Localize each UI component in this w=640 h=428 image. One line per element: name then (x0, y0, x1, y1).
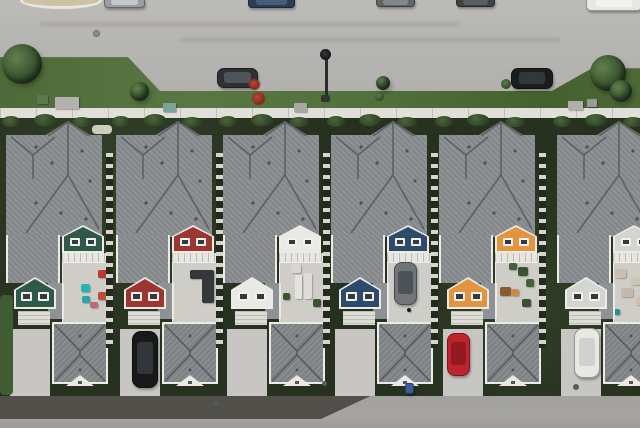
patio-furniture (500, 287, 511, 296)
vehicle-roof (383, 0, 408, 5)
front-shrub (553, 116, 571, 127)
patio-furniture (283, 293, 290, 300)
driveway (10, 329, 50, 396)
utility-box (568, 101, 583, 110)
garage-roof (52, 322, 108, 384)
patio-furniture (615, 269, 626, 278)
stepping-stone-path (539, 153, 546, 348)
patio-furniture (407, 308, 411, 312)
front-shrub (34, 114, 56, 126)
front-shrub (251, 114, 273, 126)
garage-ridge-lines (487, 324, 539, 382)
manhole-cover (93, 30, 100, 37)
lane-stain (214, 401, 218, 405)
tree (130, 82, 149, 101)
tree (376, 76, 390, 90)
front-shrub (112, 116, 130, 127)
gable-window (131, 292, 142, 301)
dormer-window (196, 238, 206, 246)
deck-railing (62, 253, 108, 262)
patio-furniture (202, 277, 214, 303)
utility-box (163, 103, 176, 112)
gable-window (238, 292, 249, 301)
patio (279, 262, 325, 324)
entry-stairs (343, 311, 375, 325)
vehicle-roof (398, 271, 413, 295)
patio-furniture (526, 279, 534, 287)
front-shrub (585, 114, 607, 126)
house-2-red (110, 113, 224, 398)
roof-ridge-lines (557, 121, 640, 237)
house-1-green (0, 113, 114, 398)
patio-furniture (518, 267, 528, 276)
lane-stain (322, 381, 327, 386)
dormer-window (503, 238, 513, 246)
patio-furniture (511, 289, 519, 296)
deck-railing (495, 253, 541, 262)
patio-furniture (313, 299, 321, 307)
patio-furniture (82, 296, 90, 303)
tire-mark (40, 22, 460, 26)
main-roof (331, 121, 427, 237)
main-roof (223, 121, 319, 237)
roof-ridge-lines (331, 121, 427, 237)
main-roof (557, 121, 640, 237)
patio-furniture (522, 299, 531, 307)
patio (613, 262, 640, 324)
patio-furniture (295, 275, 302, 299)
street-lamp-pole (325, 57, 328, 98)
dormer-window (395, 238, 405, 246)
car-top-silver (104, 0, 145, 8)
left-wing-roof (6, 235, 60, 283)
utility-box (587, 99, 597, 107)
front-shrub (144, 114, 166, 126)
car-top-dark (456, 0, 495, 7)
dormer-window (287, 238, 297, 246)
gable-window (21, 292, 32, 301)
roof-ridge-lines (223, 121, 319, 237)
dormer-window (86, 238, 96, 246)
patio-furniture (631, 277, 640, 285)
street-lamp-base (321, 95, 330, 102)
front-shrub (2, 116, 20, 127)
front-shrub (359, 114, 381, 126)
bin-blue (405, 383, 414, 394)
residential-block (0, 118, 640, 428)
garage-roof (162, 322, 218, 384)
deck-railing (613, 253, 640, 262)
driveway (335, 329, 375, 396)
utility-box (294, 103, 307, 112)
gable-window (454, 292, 465, 301)
left-wing-roof (557, 235, 611, 283)
driveway (227, 329, 267, 396)
roof-ridge-lines (6, 121, 102, 237)
front-shrub (467, 114, 489, 126)
deck-railing (387, 253, 433, 262)
left-wing-roof (116, 235, 170, 283)
aerial-photo (0, 0, 640, 428)
roof-ridge-lines (116, 121, 212, 237)
entry-stairs (451, 311, 483, 325)
patio-furniture (621, 288, 633, 297)
garage-ridge-lines (164, 324, 216, 382)
garage-ridge-lines (605, 324, 640, 382)
garage-ridge-lines (54, 324, 106, 382)
patio (62, 262, 108, 324)
vehicle-roof (596, 0, 632, 7)
deck-railing (279, 253, 325, 262)
garage-ridge-lines (271, 324, 323, 382)
patio (495, 262, 541, 324)
garage-vent (629, 381, 633, 384)
vehicle-roof (463, 0, 488, 5)
patio-furniture (291, 264, 301, 273)
garage-vent (188, 381, 192, 384)
garage-roof (603, 322, 640, 384)
car-top-blue (248, 0, 295, 8)
main-roof (439, 121, 535, 237)
gable-window (148, 292, 159, 301)
entry-stairs (569, 311, 601, 325)
garage-roof (269, 322, 325, 384)
dormer-window (180, 238, 190, 246)
parked-car-right (511, 68, 553, 89)
fresh-asphalt-patch (0, 396, 382, 419)
dormer-window (519, 238, 529, 246)
dormer-window (303, 238, 313, 246)
vehicle-top-white (586, 0, 640, 11)
vehicle-roof (519, 72, 546, 84)
car-red-driveway (447, 333, 470, 376)
garden-hedge (92, 125, 112, 134)
suv-black-driveway (132, 331, 158, 388)
house-4-blue (325, 113, 439, 398)
patio-furniture (90, 302, 98, 308)
main-roof (6, 121, 102, 237)
patio (172, 262, 218, 324)
tree (610, 80, 632, 102)
gable-window (471, 292, 482, 301)
vehicle-roof (451, 342, 466, 366)
garage-roof (485, 322, 541, 384)
street-lamp-head (320, 49, 331, 60)
vehicle-roof (224, 72, 250, 83)
utility-box (55, 97, 79, 109)
vehicle-roof (111, 0, 137, 5)
car-gray-parking-pad (394, 262, 417, 305)
lane-stain (573, 384, 579, 390)
vehicle-roof (256, 0, 286, 5)
utility-box (37, 95, 48, 104)
garage-roof (377, 322, 433, 384)
front-shrub (435, 116, 453, 127)
van-white-driveway (574, 328, 600, 378)
garage-vent (78, 381, 82, 384)
dormer-window (411, 238, 421, 246)
gable-window (572, 292, 583, 301)
patio-furniture (636, 297, 640, 305)
red-shrub (252, 92, 265, 105)
garage-ridge-lines (379, 324, 431, 382)
vehicle-roof (137, 342, 154, 373)
left-wing-roof (439, 235, 493, 283)
red-shrub (249, 79, 260, 90)
entry-stairs (128, 311, 160, 325)
patio-furniture (304, 273, 312, 299)
main-roof (116, 121, 212, 237)
tire-mark (180, 38, 560, 42)
gable-window (589, 292, 600, 301)
gable-window (38, 292, 49, 301)
tree (2, 44, 42, 84)
entry-stairs (235, 311, 267, 325)
front-shrub (219, 116, 237, 127)
patio-furniture (509, 263, 517, 270)
vehicle-roof (579, 338, 596, 366)
dormer-window (70, 238, 80, 246)
gable-window (363, 292, 374, 301)
deck-railing (172, 253, 218, 262)
left-wing-roof (223, 235, 277, 283)
car-top-gray (376, 0, 415, 7)
patio-furniture (81, 284, 90, 292)
curb-bush (501, 79, 511, 89)
garden-hedge (0, 295, 13, 395)
dormer-window (621, 238, 631, 246)
entry-stairs (18, 311, 50, 325)
garage-vent (511, 381, 515, 384)
garage-vent (295, 381, 299, 384)
gable-window (346, 292, 357, 301)
front-shrub (327, 116, 345, 127)
house-3-white (217, 113, 331, 398)
curb-bush (375, 92, 384, 101)
left-wing-roof (331, 235, 385, 283)
roof-ridge-lines (439, 121, 535, 237)
gable-window (255, 292, 266, 301)
